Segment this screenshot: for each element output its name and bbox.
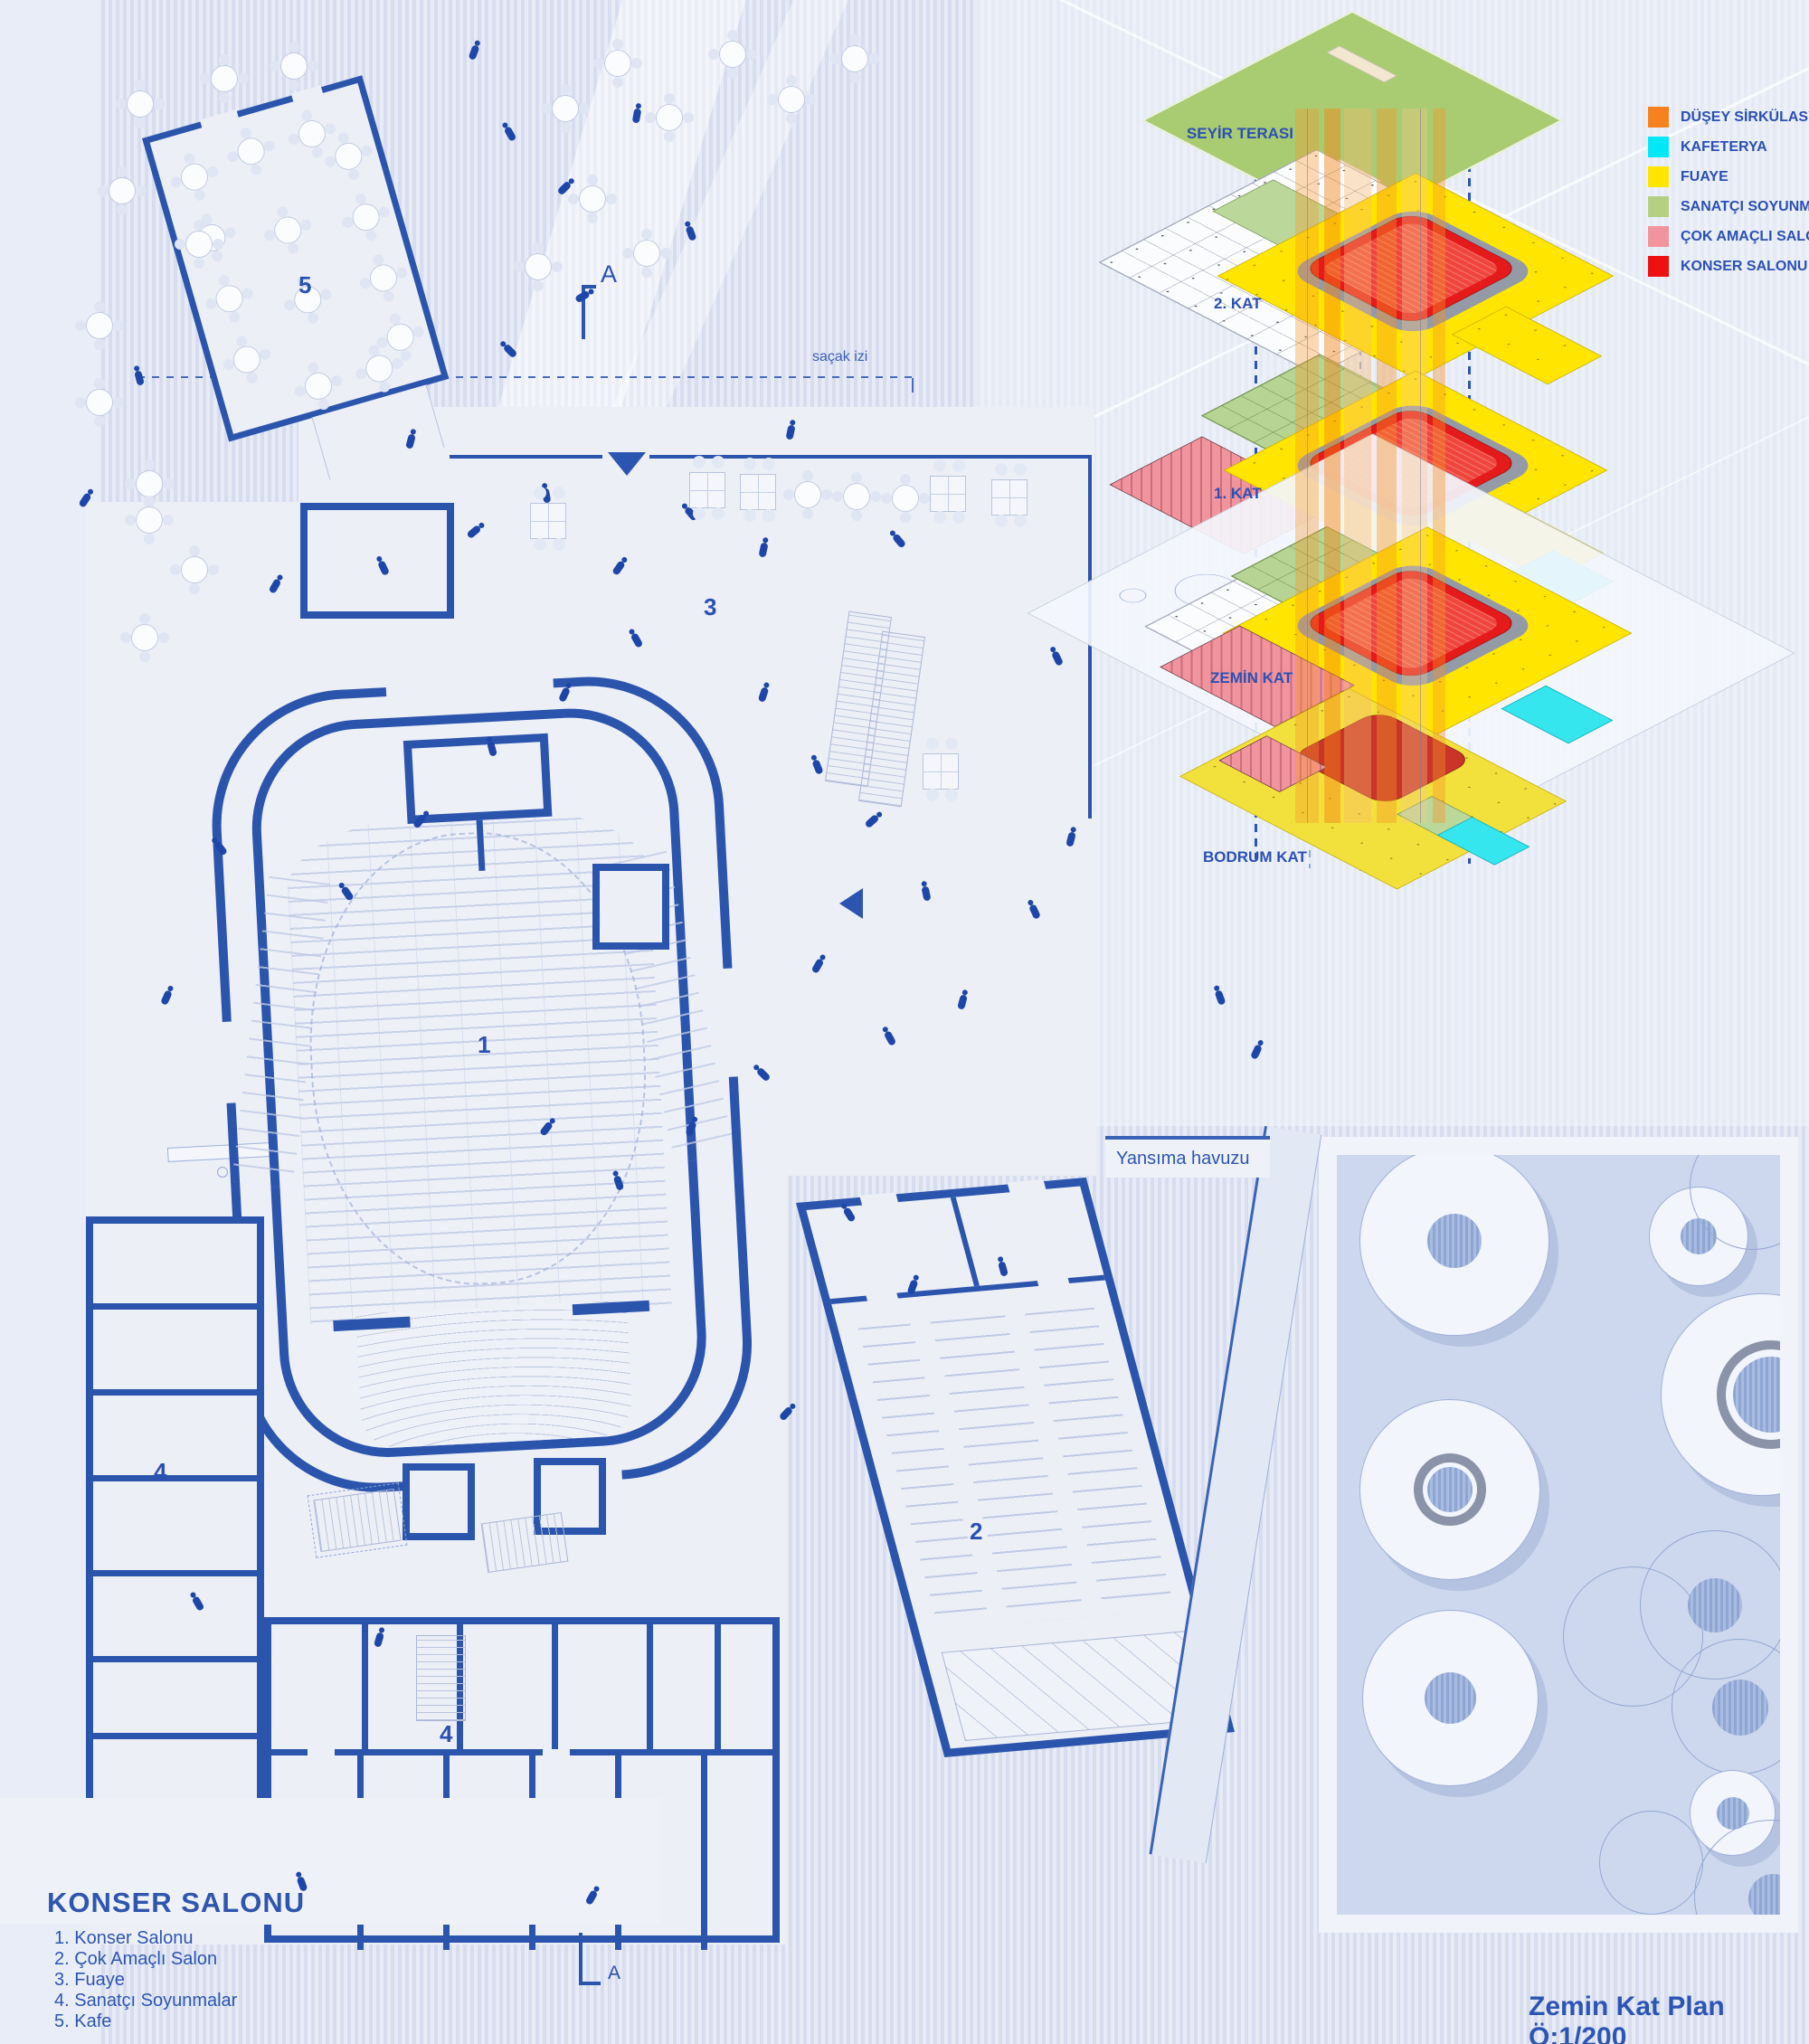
round-table-icon — [185, 231, 213, 258]
legend-label: DÜŞEY SİRKÜLASYON — [1681, 109, 1809, 126]
round-table-icon — [177, 160, 211, 194]
key-list-item: 1. Konser Salonu — [54, 1928, 237, 1949]
circulation-shaft — [1377, 109, 1397, 823]
round-table-icon — [280, 52, 308, 80]
round-table-icon — [271, 213, 305, 247]
legend-label: FUAYE — [1681, 169, 1728, 185]
legend-label: KONSER SALONU — [1681, 259, 1807, 275]
round-table-icon — [552, 95, 579, 122]
square-table-icon — [740, 474, 776, 510]
counter-stool — [217, 1167, 228, 1178]
stairs-dashed-outline — [308, 1482, 408, 1558]
cafe-tables — [150, 83, 441, 434]
legend-swatch — [1648, 166, 1669, 187]
sheet-title: Zemin Kat Plan Ö:1/200 — [1529, 1992, 1800, 2044]
pool-label: Yansıma havuzu — [1116, 1149, 1250, 1169]
axon-label-zemin-kat: ZEMİN KAT — [1210, 669, 1293, 687]
round-table-icon — [843, 483, 870, 510]
shaft-edge-line — [1420, 109, 1421, 823]
key-list-item: 5. Kafe — [54, 2011, 237, 2032]
round-table-icon — [841, 45, 868, 72]
round-table-icon — [136, 470, 163, 497]
plan-key-list: 1. Konser Salonu 2. Çok Amaçlı Salon 3. … — [54, 1928, 237, 2032]
legend-label: SANATÇI SOYUNMALAR — [1681, 199, 1809, 215]
key-list-item: 2. Çok Amaçlı Salon — [54, 1949, 237, 1970]
circulation-shaft — [1433, 109, 1445, 823]
circulation-shaft — [1402, 109, 1427, 823]
side-room — [592, 864, 669, 950]
axon-label-bodrum-kat: BODRUM KAT — [1203, 848, 1307, 866]
round-table-icon — [794, 481, 821, 508]
round-table-icon — [349, 201, 383, 234]
round-table-icon — [86, 312, 113, 339]
section-label-bottom: A — [608, 1963, 620, 1984]
round-table-icon — [295, 117, 328, 150]
tree-circle — [1599, 1811, 1703, 1915]
circulation-shaft — [1324, 109, 1340, 823]
foyer-top-wall — [450, 455, 1092, 459]
section-line-bottom — [579, 1933, 582, 1985]
round-table-icon — [211, 65, 238, 92]
round-table-icon — [384, 320, 417, 354]
round-table-icon — [332, 139, 365, 173]
poster-canvas: saçak izi A 5 3 — [0, 0, 1809, 2044]
legend-swatch — [1648, 137, 1669, 157]
legend-swatch — [1648, 107, 1669, 128]
round-table-icon — [363, 352, 396, 385]
round-table-icon — [525, 253, 552, 280]
legend-swatch — [1648, 256, 1669, 277]
axon-label-seyir-terasi: SEYİR TERASI — [1167, 125, 1293, 143]
stairs — [416, 1635, 466, 1721]
room-number-kafe: 5 — [298, 271, 311, 299]
key-list-item: 4. Sanatçı Soyunmalar — [54, 1991, 237, 2011]
room-number-fuaye: 3 — [704, 593, 716, 621]
room-number-soyunma-bottom: 4 — [440, 1720, 452, 1748]
round-table-icon — [604, 50, 631, 77]
legend-label: KAFETERYA — [1681, 139, 1767, 156]
round-table-icon — [127, 90, 154, 118]
round-table-icon — [656, 104, 683, 131]
entrance-arrow-icon — [608, 452, 646, 476]
round-table-icon — [86, 389, 113, 416]
round-table-icon — [778, 86, 805, 113]
square-table-icon — [991, 479, 1028, 516]
round-table-icon — [301, 369, 335, 402]
round-table-icon — [136, 506, 163, 534]
axon-label-2kat: 2. KAT — [1214, 295, 1262, 313]
eave-label: saçak izi — [812, 349, 867, 365]
person-icon — [469, 44, 480, 61]
backstage-room — [403, 1463, 475, 1540]
round-table-icon — [213, 282, 246, 316]
round-table-icon — [234, 135, 268, 168]
side-entrance-arrow-icon — [839, 888, 863, 919]
room-number-cok-amacli: 2 — [970, 1518, 982, 1546]
round-table-icon — [366, 261, 400, 295]
left-plain-band — [0, 0, 99, 2044]
section-line-bottom — [579, 1982, 601, 1985]
concert-hall-group — [205, 670, 762, 1506]
plan-heading: KONSER SALONU — [47, 1887, 305, 1919]
square-table-icon — [923, 753, 959, 790]
round-table-icon — [109, 177, 136, 204]
round-table-icon — [131, 624, 158, 651]
axon-label-1kat: 1. KAT — [1214, 485, 1262, 503]
legend-swatch — [1648, 196, 1669, 217]
pool-label-panel: Yansıma havuzu — [1105, 1136, 1270, 1178]
reflection-pool — [1150, 1126, 1322, 1863]
landscape-panel — [1319, 1137, 1798, 1933]
square-table-icon — [930, 476, 966, 512]
multipurpose-hall — [796, 1178, 1235, 1757]
round-table-icon — [230, 343, 263, 376]
round-table-icon — [719, 41, 746, 68]
round-table-icon — [181, 556, 208, 583]
legend-swatch — [1648, 226, 1669, 247]
legend-label: ÇOK AMAÇLI SALON — [1681, 229, 1809, 245]
person-icon — [504, 126, 517, 142]
room-number-soyunma-left: 4 — [154, 1458, 166, 1486]
square-table-icon — [689, 472, 725, 508]
key-list-item: 3. Fuaye — [54, 1970, 237, 1991]
round-table-icon — [892, 485, 919, 512]
shaft-edge-line — [1307, 109, 1308, 823]
room-number-konser: 1 — [478, 1031, 490, 1059]
round-table-icon — [579, 185, 606, 213]
eave-dashed-hook — [912, 378, 914, 393]
round-table-icon — [633, 240, 660, 267]
person-icon — [134, 370, 145, 386]
square-table-icon — [530, 503, 566, 539]
dressing-rooms-left — [86, 1216, 264, 1821]
section-label-top: A — [601, 260, 617, 289]
circulation-shaft — [1344, 109, 1371, 823]
cafe-building — [142, 75, 449, 441]
